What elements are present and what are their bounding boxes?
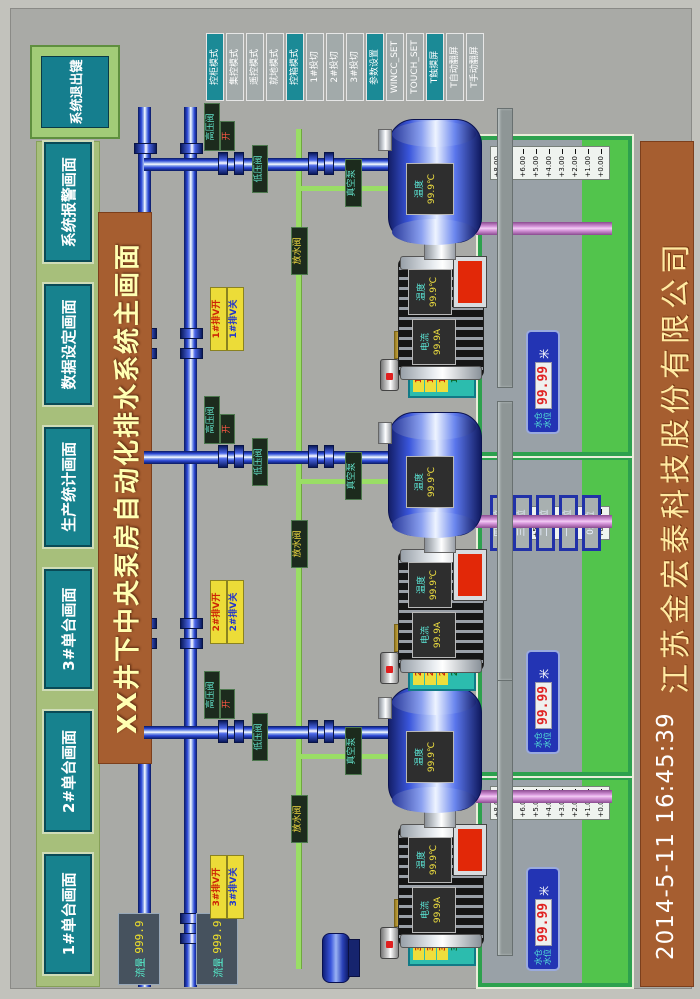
- pump3-discharge-stub: [378, 697, 392, 719]
- tank2-level-label: 水仓水位: [534, 732, 552, 748]
- tank3-level-value: 99.99: [535, 899, 552, 946]
- pump1-discharge-valve-closed: 1#排V关: [227, 287, 244, 351]
- pump2-lp-valve-label: 低压阀: [252, 438, 268, 486]
- pump3-drain-valve-label: 放水阀: [291, 795, 308, 843]
- pump3-vacuum-pump-label: 真空泵: [345, 727, 362, 775]
- mode-button[interactable]: 遥控模式: [246, 33, 264, 101]
- pump3-discharge-valve-closed: 3#排V关: [227, 855, 244, 919]
- pump3-hydraulic-motor-icon: [380, 927, 399, 959]
- mode-button[interactable]: 2#投切: [326, 33, 344, 101]
- tank1-level-label: 水仓水位: [534, 412, 552, 428]
- pump3-riser-flange: [218, 720, 228, 743]
- pump3-lp-valve-label: 低压阀: [252, 713, 268, 761]
- pump1-hydraulic-motor-icon: [380, 359, 399, 391]
- scale-tick-label: +3.00: [556, 147, 569, 179]
- pump3-discharge-valve-open: 3#排V开: [210, 855, 227, 919]
- tank1-water: [582, 140, 628, 452]
- mode-button[interactable]: 控箱模式: [286, 33, 304, 101]
- pump2-motor-temperature: 温度99.9℃: [408, 562, 452, 608]
- pump2-riser-flange: [308, 445, 318, 468]
- pump1-riser-flange: [324, 152, 334, 175]
- pump2-temperature: 温度99.9℃: [406, 456, 454, 508]
- mode-button[interactable]: T触摸屏: [426, 33, 444, 101]
- pump-unit-2: 2#排V开 2#排V关 高压阀 开 低压阀 放水阀 真空泵 2#管阀开 2#管阀…: [140, 396, 520, 696]
- scada-screen: 流量999.9流量999.9 1#单台画面2#单台画面3#单台画面生产统计画面数…: [0, 0, 700, 999]
- pump1-riser-flange: [218, 152, 228, 175]
- pump1-riser-flange: [308, 152, 318, 175]
- pump1-drain-valve-label: 放水阀: [291, 227, 308, 275]
- system-exit-button[interactable]: 系统退出键: [30, 45, 120, 139]
- scale-tick-label: +2.00: [569, 147, 582, 179]
- pump2-motor-cap: [400, 659, 482, 673]
- mode-button[interactable]: 3#投切: [346, 33, 364, 101]
- pump1-temperature: 温度99.9℃: [406, 163, 454, 215]
- mode-button[interactable]: 就地模式: [266, 33, 284, 101]
- tank2-level-value: 99.99: [535, 682, 552, 729]
- pump3-motor-cap: [400, 934, 482, 948]
- pump3-stop-indicator[interactable]: [454, 825, 486, 875]
- pump2-body-cap: [392, 512, 476, 538]
- tank1-level-unit: 米: [536, 349, 551, 359]
- pump1-riser-flange: [234, 152, 244, 175]
- top-button-row: 1#单台画面2#单台画面3#单台画面生产统计画面数据设定画面系统报警画面: [36, 141, 100, 987]
- mode-button-column: 控柜模式集控模式遥控模式就地模式控箱模式1#投切2#投切3#投切参数设置WINC…: [206, 31, 486, 101]
- mode-button[interactable]: TOUCH_SET: [406, 33, 424, 101]
- tank3-level-display: 水仓水位 99.99 米: [526, 867, 560, 971]
- pump2-discharge-valve-open: 2#排V开: [210, 580, 227, 644]
- mode-button[interactable]: 1#投切: [306, 33, 324, 101]
- pump3-temperature: 温度99.9℃: [406, 731, 454, 783]
- pump3-riser-flange: [308, 720, 318, 743]
- pump2-discharge-valve-closed: 2#排V关: [227, 580, 244, 644]
- pump2-hp-valve-state: 开: [220, 414, 235, 444]
- tank1-level-display: 水仓水位 99.99 米: [526, 330, 560, 434]
- mode-button[interactable]: T手动翻屏: [466, 33, 484, 101]
- tank3-level-label: 水仓水位: [534, 949, 552, 965]
- pump1-discharge-stub: [378, 129, 392, 151]
- pump1-motor-current: 电流99.9A: [412, 319, 456, 365]
- pump1-hp-valve-label: 高压阀: [204, 103, 220, 151]
- footer-bar: 2014-5-11 16:45:39 江苏金宏泰科技股份有限公司: [640, 141, 694, 987]
- mode-button[interactable]: WINCC_SET: [386, 33, 404, 101]
- screen-button[interactable]: 2#单台画面: [44, 711, 92, 831]
- pump1-motor-cap: [400, 366, 482, 380]
- pump1-hp-valve-state: 开: [220, 121, 235, 151]
- mode-button[interactable]: 集控模式: [226, 33, 244, 101]
- pump2-riser-flange: [218, 445, 228, 468]
- scale-tick-label: +0.00: [595, 147, 608, 179]
- scale-tick-label: +4.00: [543, 147, 556, 179]
- screen-button[interactable]: 3#单台画面: [44, 569, 92, 689]
- pump3-riser-flange: [324, 720, 334, 743]
- rotated-screenshot-viewport: 流量999.9流量999.9 1#单台画面2#单台画面3#单台画面生产统计画面数…: [0, 0, 700, 999]
- mode-button[interactable]: T自动翻屏: [446, 33, 464, 101]
- pump2-drain-valve-label: 放水阀: [291, 520, 308, 568]
- pump1-body-cap: [392, 219, 476, 245]
- tank2-level-unit: 米: [536, 669, 551, 679]
- pump2-vacuum-pump-label: 真空泵: [345, 452, 362, 500]
- pump2-stop-indicator[interactable]: [454, 550, 486, 600]
- pump2-hydraulic-motor-icon: [380, 652, 399, 684]
- scale-tick-label: +1.00: [582, 147, 595, 179]
- pump1-body-cap: [392, 121, 476, 147]
- pump3-body-cap: [392, 787, 476, 813]
- pump1-discharge-valve-open: 1#排V开: [210, 287, 227, 351]
- company-name: 江苏金宏泰科技股份有限公司: [651, 239, 695, 694]
- pump3-motor-temperature: 温度99.9℃: [408, 837, 452, 883]
- pump2-hp-valve-label: 高压阀: [204, 396, 220, 444]
- pump1-vacuum-pump-label: 真空泵: [345, 159, 362, 207]
- tank1-level-value: 99.99: [535, 362, 552, 409]
- screen-button[interactable]: 1#单台画面: [44, 854, 92, 974]
- screen-button[interactable]: 数据设定画面: [44, 284, 92, 404]
- pump3-drain-stub: [298, 754, 390, 759]
- pump-unit-3: 3#排V开 3#排V关 高压阀 开 低压阀 放水阀 真空泵 3#管阀开 3#管阀…: [140, 671, 520, 971]
- pump1-drain-stub: [298, 186, 390, 191]
- scale-tick-label: +5.00: [530, 147, 543, 179]
- pump2-body-cap: [392, 414, 476, 440]
- mode-button[interactable]: 控柜模式: [206, 33, 224, 101]
- pump2-discharge-stub: [378, 422, 392, 444]
- pump1-lp-valve-label: 低压阀: [252, 145, 268, 193]
- pump3-motor-current: 电流99.9A: [412, 887, 456, 933]
- screen-button[interactable]: 系统报警画面: [44, 142, 92, 262]
- page-title: XX井下中央泵房自动化排水系统主画面: [107, 242, 144, 734]
- tank3-level-unit: 米: [536, 886, 551, 896]
- pump2-motor-current: 电流99.9A: [412, 612, 456, 658]
- pump1-stop-indicator[interactable]: [454, 257, 486, 307]
- pump1-motor-temperature: 温度99.9℃: [408, 269, 452, 315]
- pump2-riser-flange: [234, 445, 244, 468]
- pump2-drain-stub: [298, 479, 390, 484]
- screen-button[interactable]: 生产统计画面: [44, 427, 92, 547]
- system-exit-label: 系统退出键: [41, 56, 109, 128]
- pump-unit-1: 1#排V开 1#排V关 高压阀 开 低压阀 放水阀 真空泵 1#管阀开 1#管阀…: [140, 103, 520, 403]
- mode-button[interactable]: 参数设置: [366, 33, 384, 101]
- pump2-riser-flange: [324, 445, 334, 468]
- tank2-level-display: 水仓水位 99.99 米: [526, 650, 560, 754]
- datetime-text: 2014-5-11 16:45:39: [653, 712, 679, 960]
- pump3-riser-flange: [234, 720, 244, 743]
